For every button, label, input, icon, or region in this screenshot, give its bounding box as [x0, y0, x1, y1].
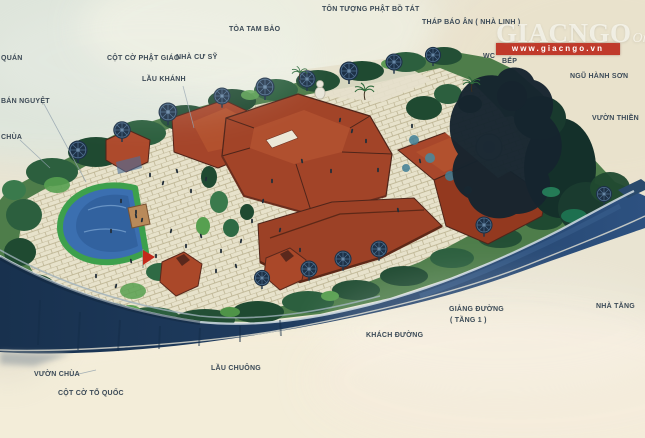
watermark-suffix: Online — [633, 31, 645, 46]
map-labels: QUÁNCỘT CỜ PHẬT GIÁONHÀ CƯ SỸTÒA TAM BẢO… — [0, 0, 645, 438]
map-label-toa-tam-bao: TÒA TAM BẢO — [229, 26, 280, 34]
map-label-chua: CHÙA — [1, 134, 22, 142]
map-label-cot-co-phat-giao: CỘT CỜ PHẬT GIÁO — [107, 55, 180, 63]
map-label-vuon-thien: VƯỜN THIỀN — [592, 115, 639, 123]
watermark-brand-line: GIACNGOOnline — [496, 20, 642, 47]
map-label-giang-duong-tang-1: ( TẦNG 1 ) — [450, 317, 487, 325]
map-label-nha-tang: NHÀ TĂNG — [596, 303, 635, 311]
map-label-bep: BẾP — [502, 58, 517, 66]
map-label-ton-tuong-phat-bo-tat: TÔN TƯỢNG PHẬT BỒ TÁT — [322, 6, 420, 14]
site-plan-photo: QUÁNCỘT CỜ PHẬT GIÁONHÀ CƯ SỸTÒA TAM BẢO… — [0, 0, 645, 438]
watermark-bar: www.giacngo.vn — [496, 43, 620, 55]
map-label-giang-duong: GIẢNG ĐƯỜNG — [449, 306, 504, 314]
map-label-quan: QUÁN — [1, 55, 23, 63]
map-label-wc: WC — [483, 53, 495, 61]
watermark-url: www.giacngo.vn — [512, 45, 604, 53]
map-label-lau-chuong: LẦU CHUÔNG — [211, 365, 261, 373]
map-label-vuon-chua: VƯỜN CHÙA — [34, 371, 80, 379]
map-label-cot-co-to-quoc: CỘT CỜ TỔ QUỐC — [58, 390, 124, 398]
map-label-khach-duong: KHÁCH ĐƯỜNG — [366, 332, 423, 340]
map-label-ngu-hanh-son: NGŨ HÀNH SƠN — [570, 73, 628, 81]
map-label-nha-cu-sy: NHÀ CƯ SỸ — [176, 54, 218, 62]
map-label-ban-nguyet: BÁN NGUYỆT — [1, 98, 50, 106]
watermark: GIACNGOOnline www.giacngo.vn — [496, 20, 642, 55]
map-label-lau-khanh: LẦU KHÁNH — [142, 76, 186, 84]
